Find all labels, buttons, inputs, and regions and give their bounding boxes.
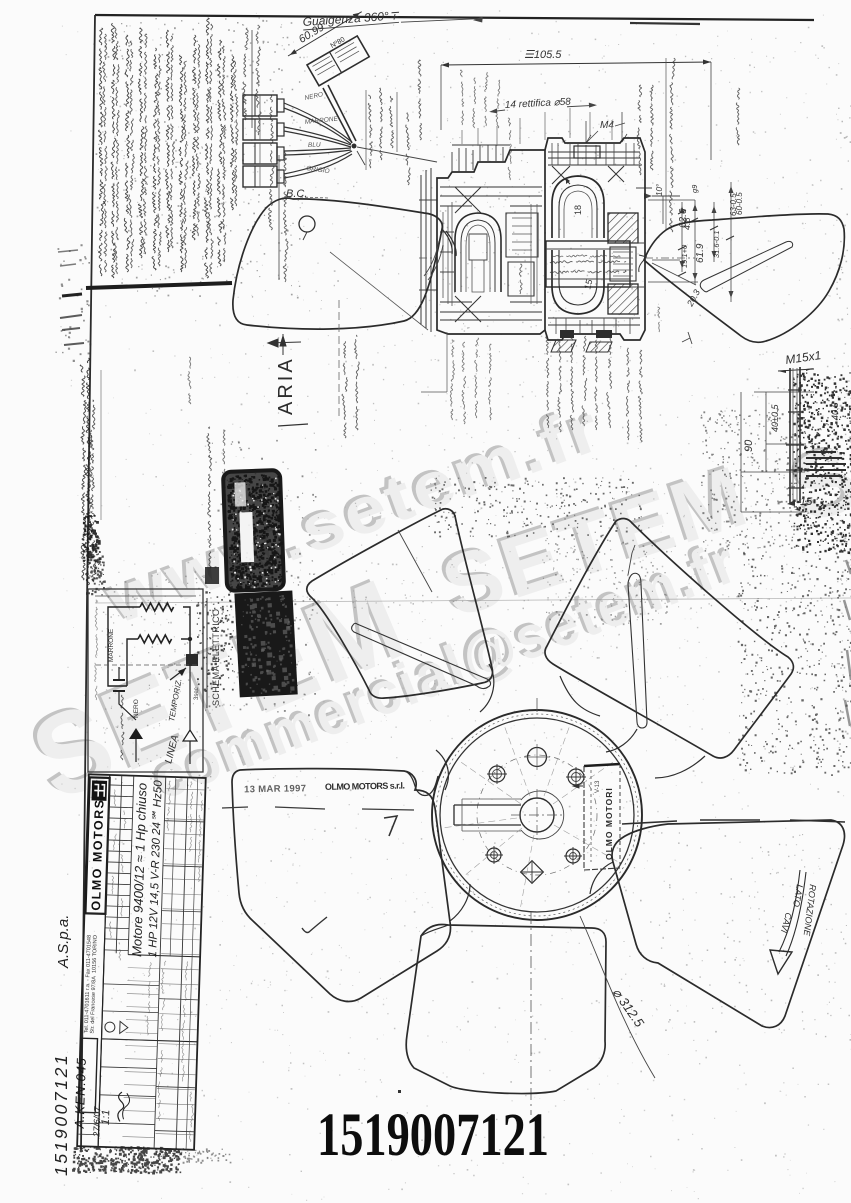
svg-text:NERO: NERO	[133, 699, 140, 718]
svg-text:27/6/07: 27/6/07	[91, 1106, 102, 1138]
svg-text:18: 18	[573, 205, 583, 215]
svg-text:61.9: 61.9	[695, 243, 706, 263]
svg-text:3sec: 3sec	[194, 687, 200, 700]
svg-text:15: 15	[800, 496, 813, 508]
svg-text:63-0.5: 63-0.5	[729, 193, 738, 216]
svg-text:19.1+0: 19.1+0	[680, 244, 689, 268]
svg-text:10°: 10°	[655, 183, 664, 196]
svg-text:OLMO MOTORS s.r.l.: OLMO MOTORS s.r.l.	[325, 781, 405, 792]
svg-text:A.S.p.a.: A.S.p.a.	[55, 915, 72, 969]
svg-text:40±0.5: 40±0.5	[770, 404, 780, 432]
svg-text:MARRONE: MARRONE	[108, 628, 115, 662]
svg-text:40.5: 40.5	[830, 401, 840, 420]
svg-text:31.6-0.1: 31.6-0.1	[712, 230, 721, 258]
svg-text:V-13: V-13	[595, 780, 601, 793]
svg-text:90: 90	[743, 439, 755, 452]
svg-text:g9: g9	[690, 184, 699, 193]
svg-text:ARIA: ARIA	[275, 356, 297, 415]
svg-text:SCHEMA ELETTRICO: SCHEMA ELETTRICO	[211, 609, 221, 706]
svg-text:1519007121: 1519007121	[51, 1053, 71, 1176]
svg-text:13 MAR 1997: 13 MAR 1997	[244, 783, 306, 795]
svg-text:A.KEN.045: A.KEN.045	[72, 1057, 89, 1129]
svg-text:1519007121: 1519007121	[317, 1102, 549, 1169]
svg-text:BLU: BLU	[308, 142, 321, 149]
svg-text:☰105.5: ☰105.5	[524, 49, 562, 61]
